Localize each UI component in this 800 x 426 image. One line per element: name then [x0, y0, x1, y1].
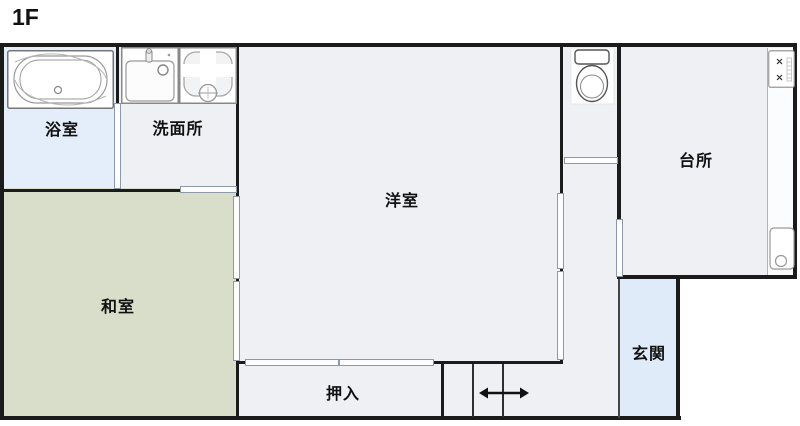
door-bathroom [114, 103, 121, 189]
floor-title: 1F [12, 4, 39, 31]
door-kitchen [616, 219, 623, 277]
vanity-sink-icon [121, 47, 179, 104]
kitchen-sink-icon [769, 227, 795, 270]
toilet-icon [570, 47, 615, 105]
label-closet: 押入 [326, 380, 360, 404]
door-western-east-2 [557, 271, 564, 360]
wall-entrance-left [618, 279, 620, 418]
door-toilet [564, 157, 618, 164]
floor-plan-1f: 1F [0, 0, 800, 426]
label-japanese-room: 和室 [101, 293, 135, 317]
stair-hall [441, 362, 621, 418]
door-closet-center-tick [338, 359, 340, 366]
label-entrance: 玄関 [632, 340, 666, 364]
wall-entrance-right [676, 277, 680, 420]
door-washroom-japanese [180, 186, 237, 193]
door-western-east-1 [557, 193, 564, 269]
label-bathroom: 浴室 [45, 116, 79, 140]
wall-kitchen-bottom [617, 275, 797, 279]
stair-step-line [472, 364, 474, 417]
label-western-room: 洋室 [385, 187, 419, 211]
door-japanese-western-1 [233, 196, 240, 279]
wall-outer-top [0, 43, 797, 47]
wall-outer-bottom [0, 416, 681, 420]
door-japanese-western-2 [233, 281, 240, 361]
wall-closet-stairs [441, 364, 444, 418]
staircase-direction-arrow-icon [478, 385, 530, 401]
bathtub-icon [7, 50, 114, 109]
label-kitchen: 台所 [679, 147, 713, 171]
gas-stove-icon [768, 50, 795, 88]
label-washroom: 洗面所 [152, 115, 203, 139]
wall-outer-left [0, 43, 4, 420]
washing-machine-pan-icon [179, 47, 237, 104]
